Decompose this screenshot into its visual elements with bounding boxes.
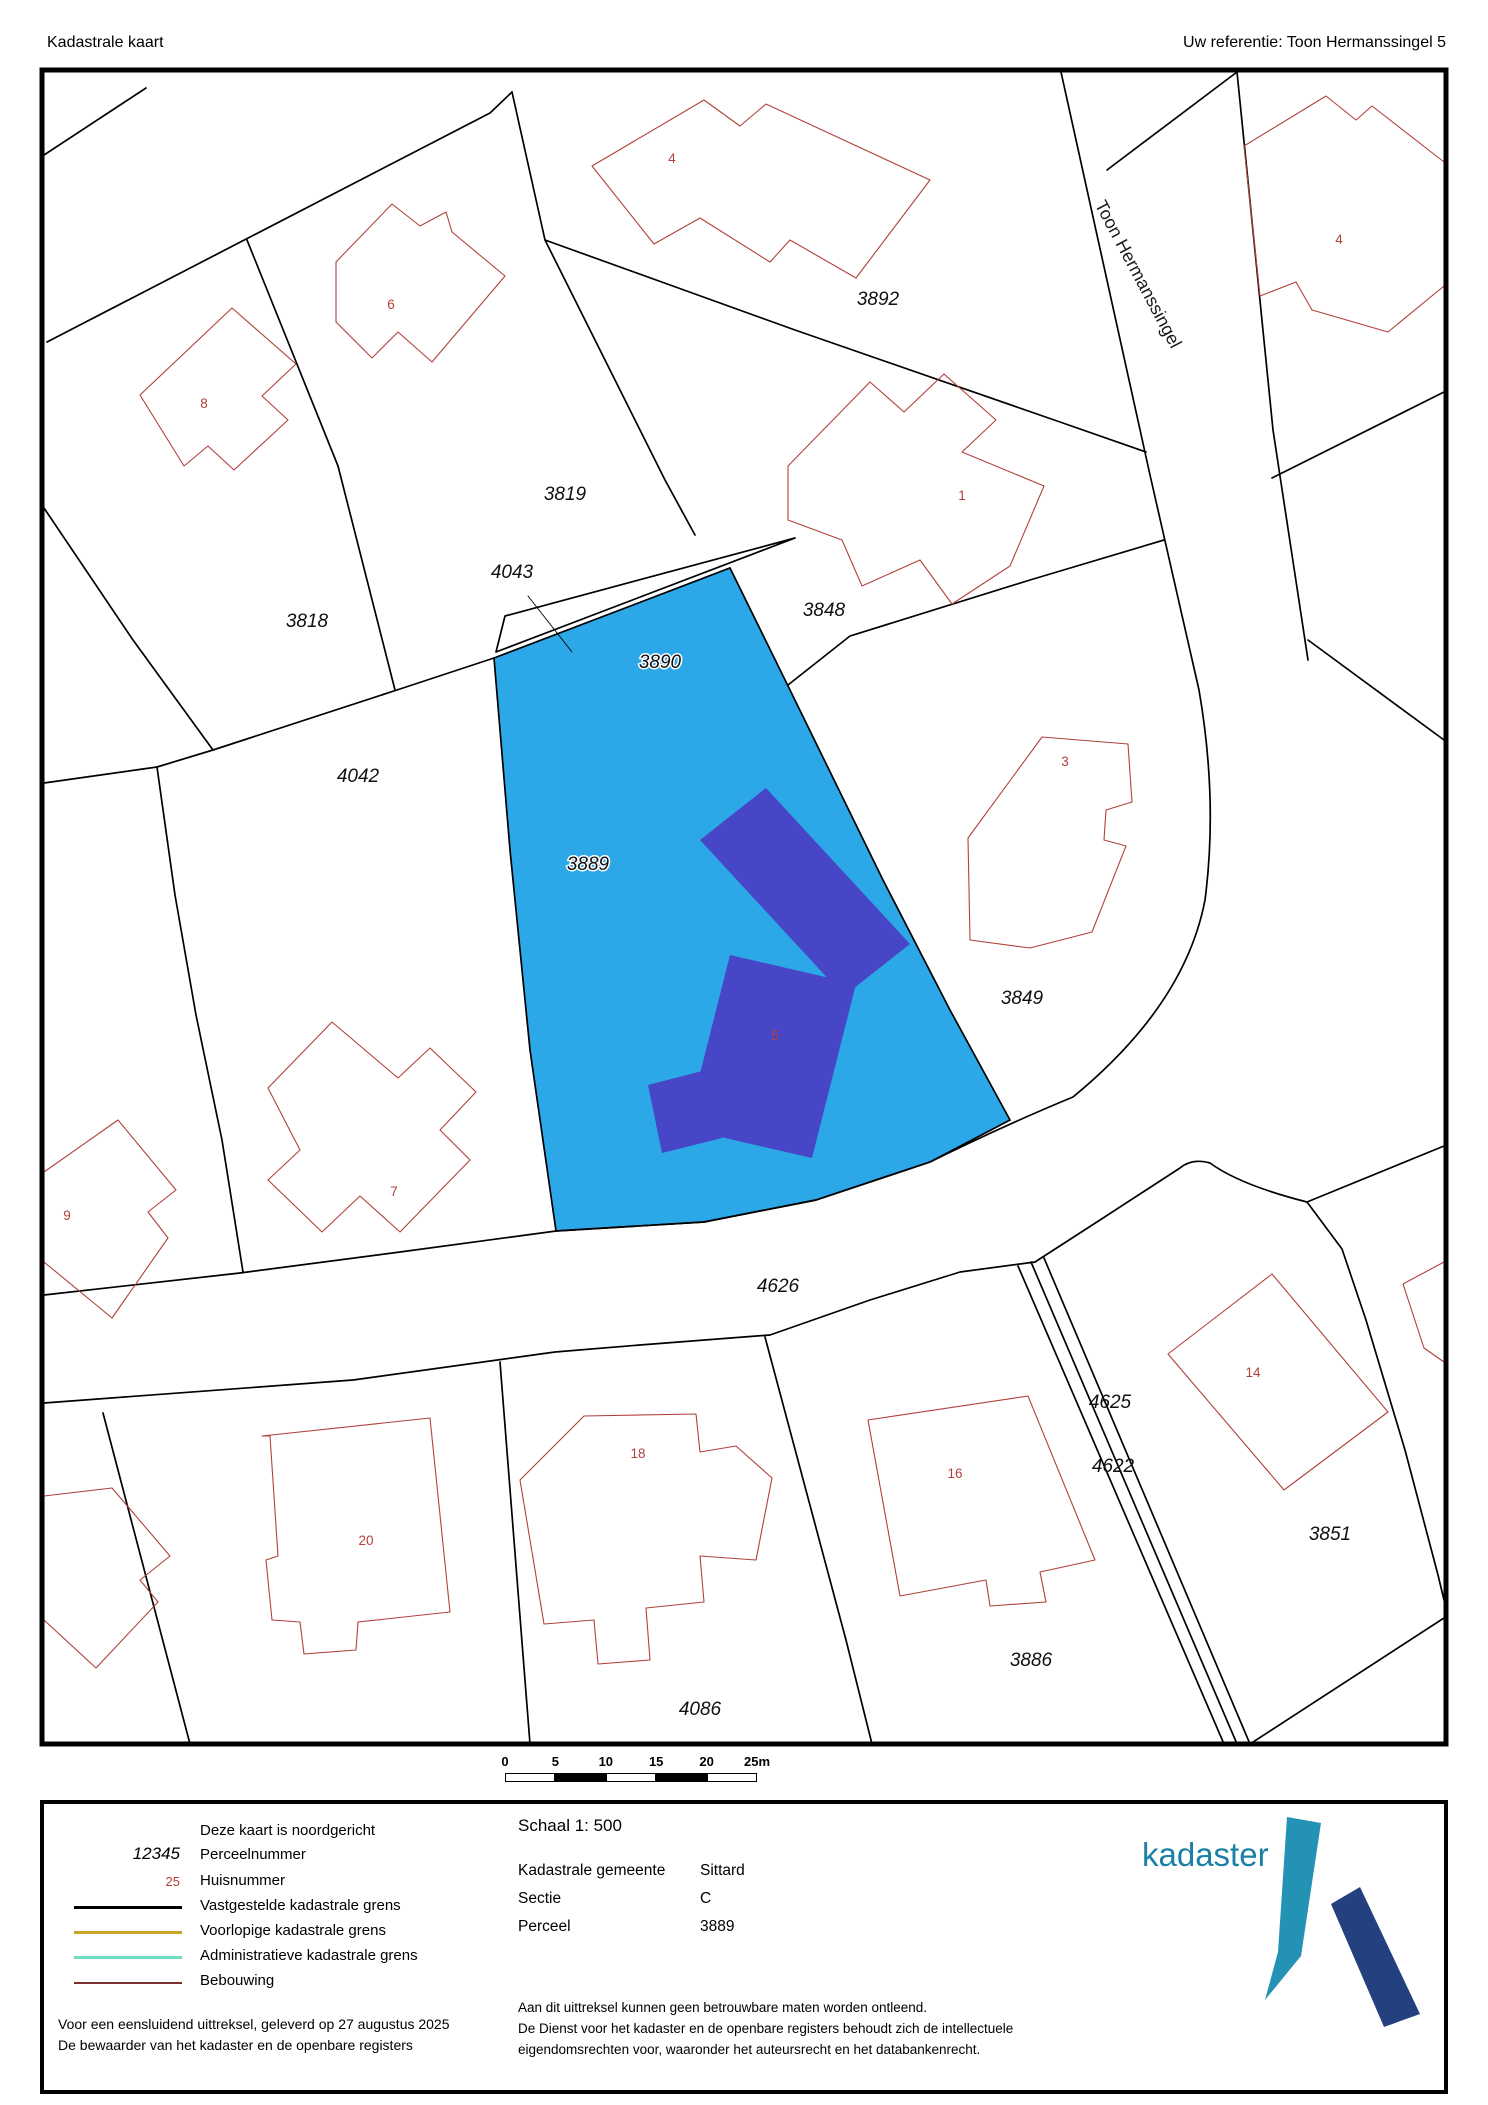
scale-bar-segment [555, 1773, 605, 1782]
parcel-number-label: 3848 [803, 600, 846, 621]
voorlopige-grens-swatch [74, 1931, 182, 1934]
parcel-number-label: 3818 [286, 611, 329, 632]
perceel-value: 3889 [700, 1918, 734, 1936]
kadaster-wordmark: kadaster [1142, 1836, 1269, 1873]
parcel-number-label: 3851 [1309, 1524, 1351, 1545]
house-number-label: 7 [390, 1184, 398, 1199]
vastgestelde-grens-swatch [74, 1906, 182, 1909]
scale-bar: 0510152025m [499, 1754, 779, 1794]
highlighted-parcel-number-label: 3890 [639, 652, 682, 673]
house-number-label: 18 [630, 1446, 645, 1461]
house-number-label: 16 [947, 1466, 962, 1481]
house-number-label: 4 [668, 151, 676, 166]
legend-label-voorlopig: Voorlopige kadastrale grens [200, 1922, 386, 1939]
legend-label-administratief: Administratieve kadastrale grens [200, 1947, 418, 1964]
scale-bar-segment [707, 1773, 757, 1782]
scale-bar-segment [505, 1773, 555, 1782]
sectie-value: C [700, 1890, 711, 1908]
scale-tick-label: 5 [552, 1754, 559, 1769]
house-number-label: 3 [1061, 754, 1069, 769]
legend-label-perceelnummer: Perceelnummer [200, 1846, 306, 1863]
scale-tick-label: 10 [599, 1754, 613, 1769]
scale-tick-label: 15 [649, 1754, 663, 1769]
parcel-number-label: 3849 [1001, 988, 1044, 1009]
scale-tick-label: 20 [699, 1754, 713, 1769]
parcel-number-label: 3892 [857, 289, 900, 310]
administratieve-grens-swatch [74, 1956, 182, 1959]
parcel-number-label: 4086 [679, 1699, 722, 1720]
legend-panel: Deze kaart is noordgericht 12345 Perceel… [40, 1800, 1448, 2094]
cadastral-map: 3892381940433818384840423849462646254622… [0, 0, 1488, 1756]
house-number-label: 4 [1335, 232, 1343, 247]
kadaster-logo: kadaster [1098, 1804, 1442, 2092]
scale-label: Schaal 1: 500 [518, 1816, 622, 1836]
gemeente-value: Sittard [700, 1862, 745, 1880]
scale-bar-segment [656, 1773, 706, 1782]
house-number-label: 20 [358, 1533, 373, 1548]
logo-blade-shape [1265, 1817, 1321, 2000]
legend-label-vastgesteld: Vastgestelde kadastrale grens [200, 1897, 401, 1914]
house-number-label: 8 [200, 396, 208, 411]
highlighted-parcel-number-label: 3889 [567, 854, 610, 875]
house-number-label: 5 [771, 1028, 779, 1043]
delivery-note-line2: De bewaarder van het kadaster en de open… [58, 2037, 413, 2053]
parcel-number-sample: 12345 [88, 1844, 180, 1864]
parcel-number-label: 4622 [1092, 1456, 1135, 1477]
perceel-label: Perceel [518, 1918, 571, 1936]
parcel-number-label: 4043 [491, 562, 534, 583]
scale-tick-label: 25m [744, 1754, 770, 1769]
parcel-number-label: 4042 [337, 766, 380, 787]
logo-stroke-shape [1331, 1887, 1420, 2027]
house-number-label: 14 [1245, 1365, 1261, 1380]
legend-label-bebouwing: Bebouwing [200, 1972, 274, 1989]
parcel-number-label: 4625 [1089, 1392, 1132, 1413]
scale-tick-label: 0 [501, 1754, 508, 1769]
parcel-number-label: 3886 [1010, 1650, 1053, 1671]
parcel-number-label: 4626 [757, 1276, 800, 1297]
cadastral-extract-page: Kadastrale kaart Uw referentie: Toon Her… [0, 0, 1488, 2105]
scale-bar-segment [606, 1773, 656, 1782]
house-number-label: 6 [387, 297, 395, 312]
house-number-label: 1 [958, 488, 966, 503]
house-number-sample: 25 [88, 1874, 180, 1889]
parcel-number-label: 3819 [544, 484, 587, 505]
house-number-label: 9 [63, 1208, 71, 1223]
disclaimer-line1: Aan dit uittreksel kunnen geen betrouwba… [518, 2000, 927, 2015]
gemeente-label: Kadastrale gemeente [518, 1862, 665, 1880]
legend-label-huisnummer: Huisnummer [200, 1872, 285, 1889]
north-note: Deze kaart is noordgericht [200, 1822, 375, 1839]
sectie-label: Sectie [518, 1890, 561, 1908]
disclaimer-line2: De Dienst voor het kadaster en de openba… [518, 2021, 1013, 2036]
disclaimer-line3: eigendomsrechten voor, waaronder het aut… [518, 2042, 980, 2057]
bebouwing-swatch [74, 1982, 182, 1984]
delivery-note-line1: Voor een eensluidend uittreksel, gelever… [58, 2016, 450, 2032]
